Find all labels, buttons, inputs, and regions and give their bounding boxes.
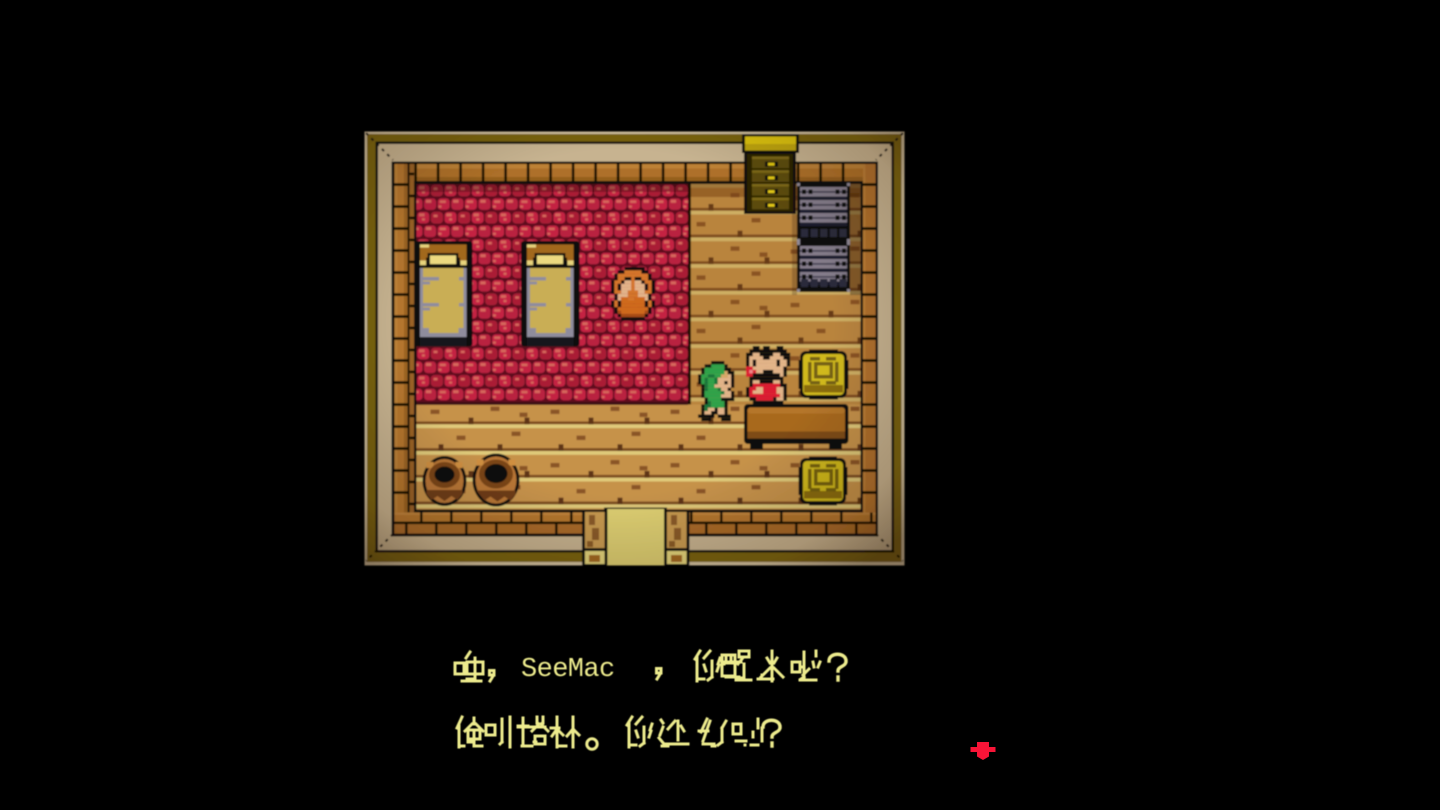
svg-text:SeeMac: SeeMac [521,655,615,685]
